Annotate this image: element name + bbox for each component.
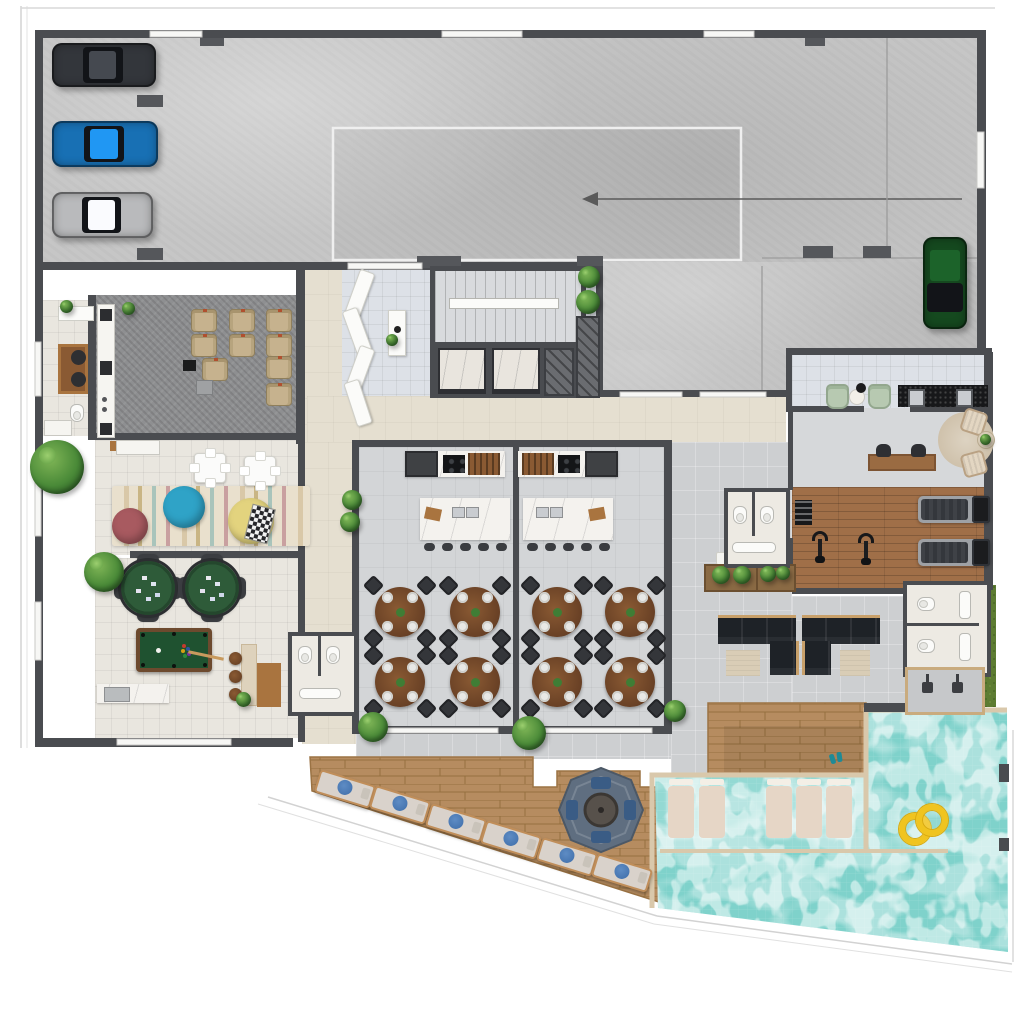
lounge-rug-1	[726, 650, 760, 676]
plate	[612, 621, 623, 632]
lounger-pillow	[415, 803, 426, 816]
cinema-recliner	[266, 334, 292, 357]
potted-plant	[60, 300, 73, 313]
rolled-towel	[447, 812, 466, 831]
island-stool	[496, 543, 507, 551]
kids-chair	[205, 478, 216, 488]
kids-chair	[270, 466, 281, 476]
cinema-cabinet	[97, 304, 115, 438]
treadmill	[918, 496, 990, 523]
treadmill-console	[972, 496, 990, 523]
potted-plant	[712, 566, 730, 584]
restroom-sink	[299, 688, 341, 699]
room-divider	[907, 623, 979, 626]
plate	[612, 592, 623, 603]
plate	[539, 621, 550, 632]
plate	[539, 592, 550, 603]
lounge-rug-2	[840, 650, 870, 676]
kids-activity-table	[244, 456, 276, 486]
island-sink	[466, 507, 479, 518]
dining-table-set	[443, 580, 507, 644]
car-roof	[930, 250, 960, 281]
cue-ball	[156, 648, 161, 653]
kids-chair	[239, 466, 250, 476]
lounger-pillow	[582, 855, 593, 868]
island-stool	[527, 543, 538, 551]
billiard-rack	[182, 644, 186, 648]
cinema-recliner	[202, 358, 228, 381]
l-sofa-left-vertical	[770, 641, 799, 675]
dining-table-set	[598, 650, 662, 714]
cooktop-b	[558, 455, 580, 473]
island-stool	[460, 543, 471, 551]
gazebo-firepit	[559, 768, 643, 852]
floorplan-canvas	[0, 0, 1024, 1034]
dining-table-set	[525, 650, 589, 714]
stall-divider	[752, 492, 755, 536]
potted-plant	[776, 566, 790, 580]
plate	[564, 621, 575, 632]
plant-large	[30, 440, 84, 494]
green-armchair	[868, 384, 891, 409]
plate	[382, 592, 393, 603]
dining-table-set	[525, 580, 589, 644]
green-armchair	[826, 384, 849, 409]
centerpiece	[396, 608, 405, 617]
treadmill	[918, 539, 990, 566]
bike-frame	[864, 541, 868, 558]
speaker-mid	[100, 361, 112, 375]
island-stool	[563, 543, 574, 551]
l-sofa-right-horizontal	[802, 615, 880, 644]
changing-rooms	[903, 581, 991, 677]
restroom-sink	[732, 542, 776, 553]
counter-sink	[908, 389, 925, 407]
potted-plant	[980, 434, 991, 445]
plate	[457, 662, 468, 673]
kids-activity-table	[194, 453, 226, 483]
cutting-board	[588, 507, 606, 522]
centerpiece	[471, 678, 480, 687]
poker-felt	[121, 561, 175, 615]
car-roof	[89, 51, 116, 79]
cinema-recliner	[266, 383, 292, 406]
plate	[457, 691, 468, 702]
island-sink	[536, 507, 549, 518]
centerpiece	[396, 678, 405, 687]
rolled-towel	[613, 862, 632, 881]
coffee-bowl	[856, 383, 866, 393]
office-chair-1	[71, 350, 86, 365]
elevator-2	[492, 348, 540, 394]
plate	[482, 621, 493, 632]
wet-deck-lounger	[796, 786, 822, 838]
plate	[637, 662, 648, 673]
potted-plant	[664, 700, 686, 722]
plate	[637, 592, 648, 603]
cinema-recliner	[266, 356, 292, 379]
shelf-b	[522, 453, 554, 475]
potted-plant	[358, 712, 388, 742]
kids-chair	[255, 481, 266, 491]
cooktop-a	[443, 455, 465, 473]
plate	[564, 592, 575, 603]
bike-frame	[818, 539, 822, 556]
dining-table-set	[443, 650, 507, 714]
wet-deck-lounger	[668, 786, 694, 838]
stall-divider	[318, 636, 321, 676]
plate	[382, 691, 393, 702]
kitchen-island-b	[523, 498, 613, 540]
treadmill-belt	[921, 542, 968, 563]
bean-bag-rose	[112, 508, 148, 544]
potted-plant	[84, 552, 124, 592]
poker-table	[116, 556, 180, 620]
rolled-towel	[558, 846, 577, 865]
lounger-pillow	[360, 787, 371, 800]
poker-felt	[185, 561, 239, 615]
projector	[183, 360, 196, 371]
potted-plant	[576, 290, 600, 314]
potted-plant	[386, 334, 398, 346]
island-stool	[581, 543, 592, 551]
outdoor-showers	[905, 667, 985, 715]
centerpiece	[626, 678, 635, 687]
car-roof	[88, 200, 114, 229]
plate	[564, 662, 575, 673]
lounger-pillow	[471, 821, 482, 834]
reception-chair	[394, 326, 401, 333]
plate	[407, 592, 418, 603]
reception-desk	[388, 310, 406, 356]
elevator-block	[430, 342, 576, 398]
plate	[564, 691, 575, 702]
l-sofa-left-horizontal	[718, 615, 796, 644]
car-silver	[52, 192, 153, 238]
cinema-recliner	[229, 334, 255, 357]
wet-deck-lounger	[826, 786, 852, 838]
sink-basin	[104, 687, 130, 702]
rolled-towel	[391, 794, 410, 813]
car-suv-dark	[52, 43, 156, 87]
swim-ring	[916, 804, 948, 836]
playroom-counter	[116, 440, 160, 455]
lounger-headrest	[700, 779, 724, 785]
potted-plant	[342, 490, 362, 510]
cutting-board	[424, 506, 442, 521]
desk-chair	[876, 444, 891, 457]
speaker-bottom	[100, 423, 112, 435]
dining-table-set	[368, 650, 432, 714]
plate	[539, 662, 550, 673]
billiard-pockets	[141, 633, 145, 637]
fridge-b	[585, 451, 618, 477]
plate	[482, 691, 493, 702]
plate	[612, 662, 623, 673]
plate	[457, 592, 468, 603]
island-stool	[442, 543, 453, 551]
island-stool	[599, 543, 610, 551]
gym-restrooms	[724, 488, 790, 568]
office-sink	[44, 420, 72, 436]
poker-table	[180, 556, 244, 620]
plate	[457, 621, 468, 632]
dining-table-set	[368, 580, 432, 644]
shower-head	[922, 682, 933, 693]
equipment-box	[196, 380, 213, 395]
plate	[482, 662, 493, 673]
corridor-restrooms	[288, 632, 358, 716]
wet-deck-lounger	[766, 786, 792, 838]
games-doormat	[257, 663, 281, 707]
desk-chair	[911, 444, 926, 457]
toilet	[733, 506, 747, 524]
service-shaft-small	[544, 348, 574, 396]
rolled-towel	[336, 778, 355, 797]
plate	[407, 691, 418, 702]
car-blue	[52, 121, 158, 167]
l-sofa-right-vertical	[802, 641, 831, 675]
car-roof	[90, 129, 118, 158]
potted-plant	[236, 692, 251, 707]
bean-bag-blue	[163, 486, 205, 528]
plate	[382, 621, 393, 632]
island-sink	[452, 507, 465, 518]
toilet	[917, 639, 935, 653]
plate	[382, 662, 393, 673]
elevator-1	[438, 348, 486, 394]
potted-plant	[340, 512, 360, 532]
car-glass	[927, 283, 962, 312]
staircase	[430, 266, 586, 354]
rolled-towel	[502, 829, 521, 848]
car-green	[923, 237, 967, 329]
island-stool	[424, 543, 435, 551]
potted-plant	[578, 266, 600, 288]
plate	[407, 621, 418, 632]
exercise-bike	[812, 531, 828, 563]
games-sink-counter	[97, 684, 169, 703]
treadmill-console	[972, 539, 990, 566]
spot-2	[102, 407, 107, 412]
plate	[637, 621, 648, 632]
centerpiece	[553, 678, 562, 687]
playing-cards	[142, 576, 147, 580]
bike-seat	[815, 556, 825, 563]
lounger-headrest	[797, 779, 821, 785]
cinema-recliner	[191, 309, 217, 332]
plate	[612, 691, 623, 702]
speaker-top	[100, 309, 112, 321]
shelf-a	[468, 453, 500, 475]
lounger-headrest	[827, 779, 851, 785]
changing-sink	[959, 633, 971, 661]
coffee-counter	[898, 385, 988, 407]
potted-plant	[733, 566, 751, 584]
kids-chair	[189, 463, 200, 473]
island-stool	[545, 543, 556, 551]
lounger-headrest	[767, 779, 791, 785]
potted-plant	[512, 716, 546, 750]
shower-head	[952, 682, 963, 693]
playing-cards	[206, 576, 211, 580]
lounger-pillow	[526, 838, 537, 851]
cinema-recliner	[266, 309, 292, 332]
dining-table-set	[598, 580, 662, 644]
changing-sink	[959, 591, 971, 619]
potted-plant	[122, 302, 135, 315]
bike-seat	[861, 558, 871, 565]
spot-1	[102, 397, 107, 402]
potted-plant	[760, 566, 776, 582]
plate	[407, 662, 418, 673]
island-sink	[550, 507, 563, 518]
plate	[637, 691, 648, 702]
kids-chair	[255, 451, 266, 461]
treadmill-belt	[921, 499, 968, 520]
lounger-headrest	[669, 779, 693, 785]
toilet	[326, 646, 340, 664]
toilet	[298, 646, 312, 664]
office-toilet	[70, 404, 84, 422]
island-stool	[478, 543, 489, 551]
garage-ramp	[333, 128, 741, 260]
fridge-a	[405, 451, 438, 477]
lounger-pillow	[637, 871, 648, 884]
billiard-table	[136, 628, 212, 672]
exercise-bike	[858, 533, 874, 565]
service-shaft	[576, 316, 600, 398]
centerpiece	[626, 608, 635, 617]
bar-stool	[229, 670, 242, 683]
centerpiece	[471, 608, 480, 617]
wet-deck-lounger	[699, 786, 725, 838]
office-chair-2	[71, 372, 86, 387]
counter-sink	[956, 389, 973, 407]
toilet	[760, 506, 774, 524]
plate	[539, 691, 550, 702]
kids-chair	[205, 448, 216, 458]
toilet	[917, 597, 935, 611]
plate	[482, 592, 493, 603]
centerpiece	[553, 608, 562, 617]
dumbbell-rack	[795, 500, 812, 525]
stair-landing	[449, 298, 559, 309]
kitchen-island-a	[420, 498, 510, 540]
billiard-felt	[140, 632, 208, 668]
cinema-recliner	[191, 334, 217, 357]
bar-stool	[229, 652, 242, 665]
cinema-recliner	[229, 309, 255, 332]
kids-chair	[220, 463, 231, 473]
